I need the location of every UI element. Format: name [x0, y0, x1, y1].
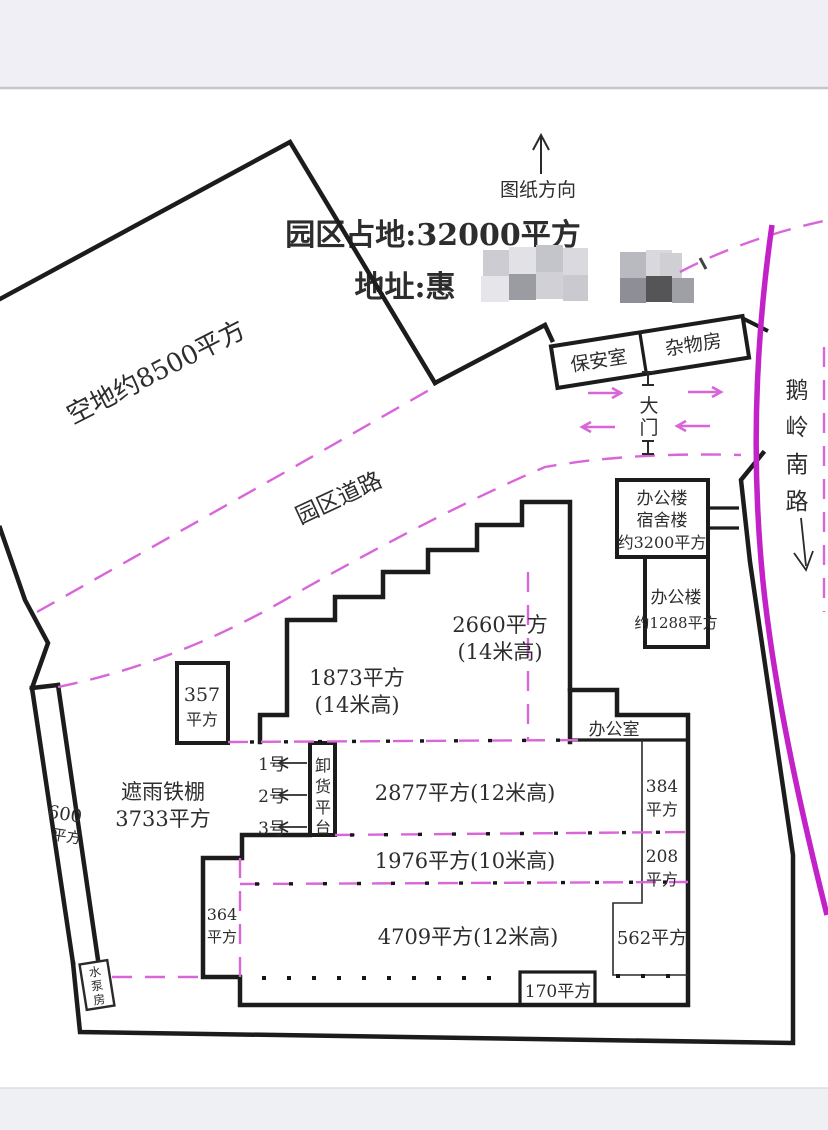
- hall-1976-label: 1976平方(10米高): [375, 849, 556, 873]
- room-208-label-1: 208: [646, 847, 678, 867]
- room-562-label: 562平方: [617, 928, 687, 949]
- office-dorm-line-3: 约3200平方: [618, 533, 707, 552]
- platform-char-1: 卸: [315, 756, 331, 775]
- shed-label-1: 遮雨铁棚: [121, 780, 205, 804]
- office-dorm-line-1: 办公楼: [637, 489, 688, 509]
- platform-char-4: 台: [315, 818, 331, 837]
- room-357-label-1: 357: [184, 684, 220, 706]
- office-2-line-2: 约1288平方: [634, 614, 717, 632]
- hall-2660-label-2: (14米高): [457, 640, 542, 664]
- top-band: [0, 0, 828, 88]
- room-364-label-2: 平方: [207, 928, 237, 946]
- north-arrow-label: 图纸方向: [500, 179, 576, 201]
- hall-2660-label-1: 2660平方: [452, 613, 547, 637]
- room-384-label-1: 384: [646, 777, 678, 797]
- road-name-char-1: 鹅: [786, 378, 809, 404]
- shed-label-2: 3733平方: [115, 807, 210, 831]
- strip-600-top: [32, 685, 58, 688]
- pump-room-char-3: 房: [92, 991, 106, 1008]
- office-room-label: 办公室: [589, 720, 640, 740]
- hall-2877-label: 2877平方(12米高): [375, 781, 556, 805]
- platform-char-2: 货: [315, 777, 331, 796]
- office-2-line-1: 办公楼: [651, 588, 702, 608]
- platform-char-3: 平: [315, 798, 331, 817]
- room-170-label: 170平方: [525, 982, 591, 1002]
- gate-label-char-2: 门: [639, 417, 658, 439]
- office-dorm-line-2: 宿舍楼: [637, 511, 688, 531]
- site-plan-drawing: 图纸方向 园区占地:32000平方 地址:惠 空地约8500平方: [0, 0, 828, 1130]
- room-384-label-2: 平方: [646, 800, 678, 819]
- bottom-band: [0, 1088, 828, 1130]
- hall-1873-label-2: (14米高): [314, 693, 399, 717]
- room-208-label-2: 平方: [646, 870, 678, 889]
- road-name-char-4: 路: [786, 489, 809, 515]
- road-name-char-3: 南: [786, 452, 809, 478]
- room-357-label-2: 平方: [186, 710, 218, 729]
- room-364-label-1: 364: [207, 905, 238, 924]
- gate-label-char-1: 大: [639, 395, 658, 417]
- road-name-char-2: 岭: [786, 415, 809, 441]
- hall-1873-label-1: 1873平方: [309, 666, 404, 690]
- hall-4709-label: 4709平方(12米高): [378, 925, 559, 949]
